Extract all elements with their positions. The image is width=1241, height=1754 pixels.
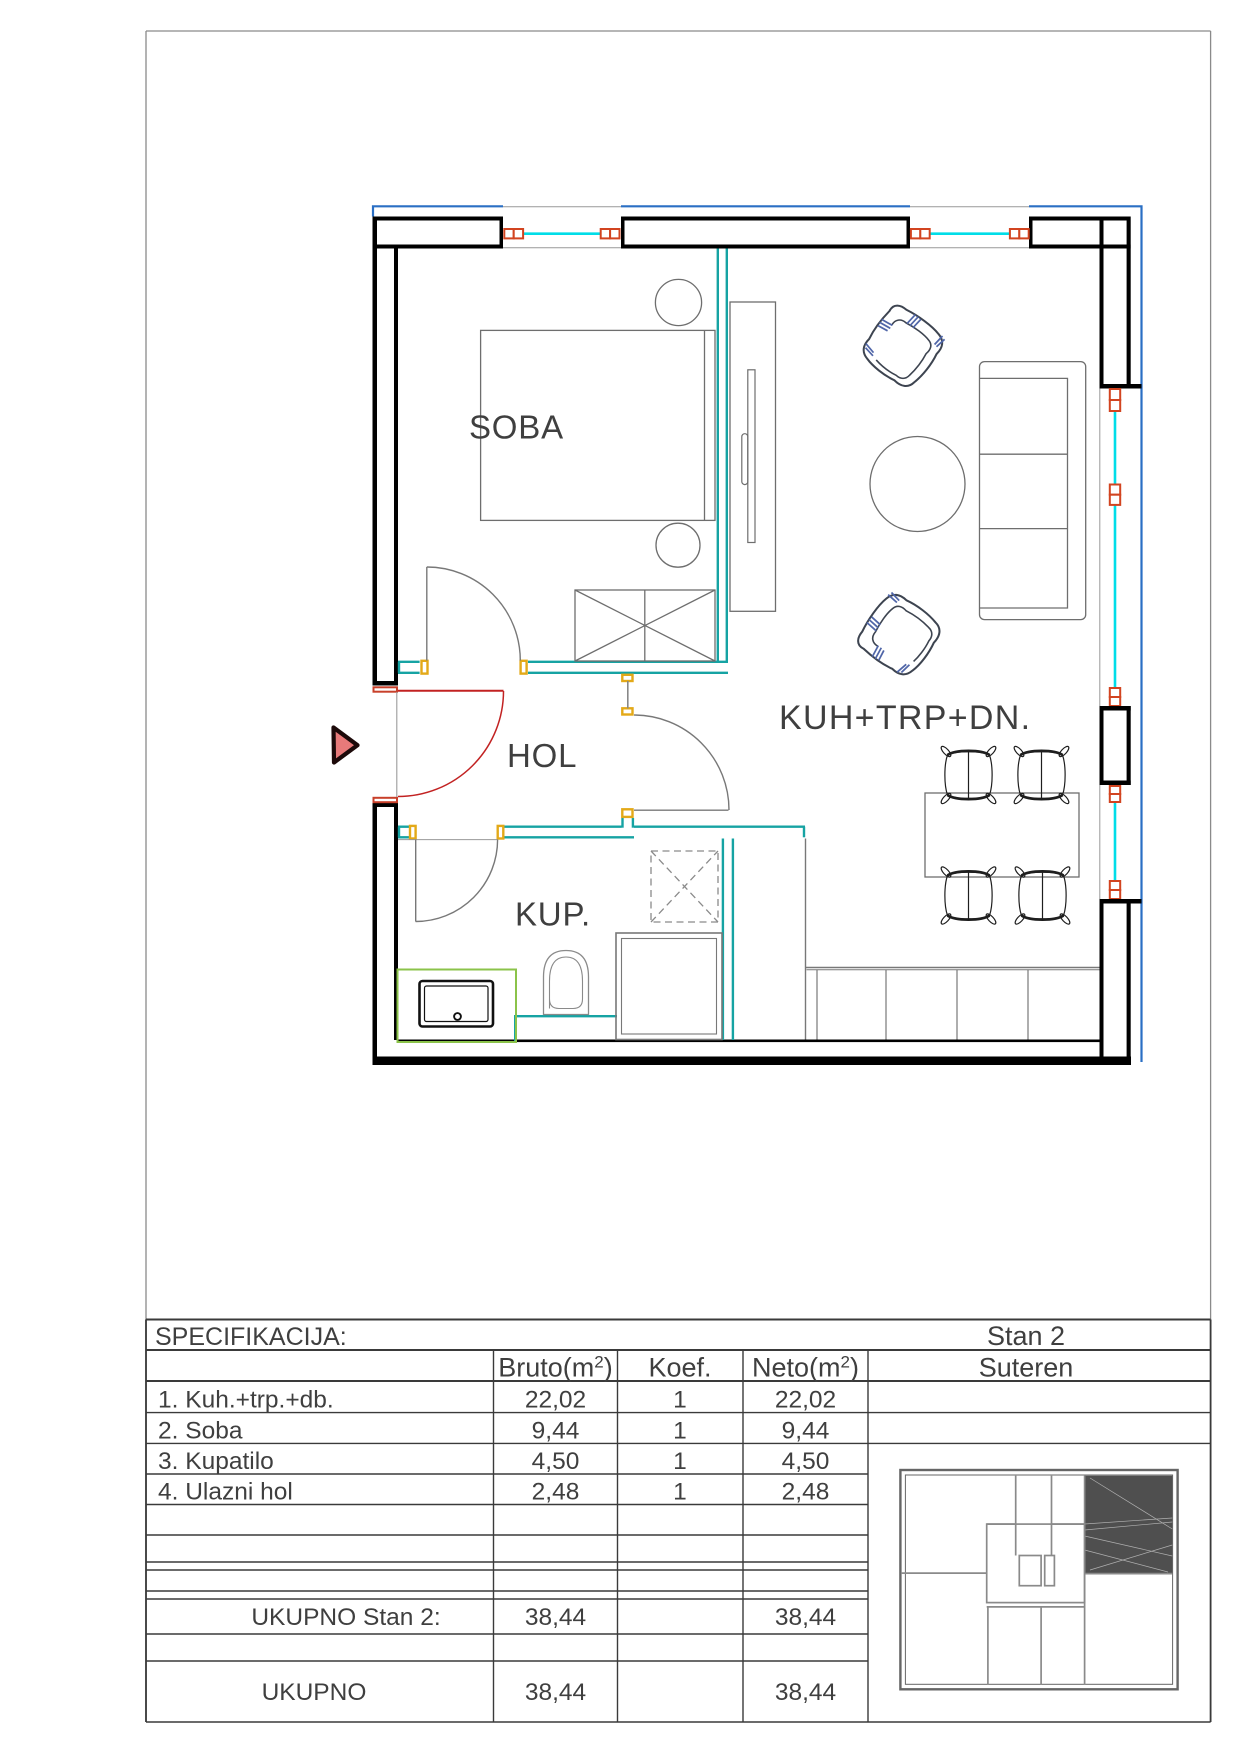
svg-text:4. Ulazni hol: 4. Ulazni hol — [158, 1479, 293, 1506]
svg-text:UKUPNO: UKUPNO — [262, 1679, 367, 1706]
svg-text:2,48: 2,48 — [532, 1479, 580, 1506]
svg-text:1: 1 — [673, 1448, 687, 1475]
svg-text:SPECIFIKACIJA:: SPECIFIKACIJA: — [155, 1323, 347, 1351]
svg-text:1: 1 — [673, 1387, 687, 1414]
svg-text:UKUPNO Stan 2:: UKUPNO Stan 2: — [251, 1604, 440, 1631]
svg-text:Koef.: Koef. — [648, 1353, 711, 1383]
svg-text:1: 1 — [673, 1418, 687, 1445]
svg-text:Suteren: Suteren — [979, 1353, 1074, 1383]
svg-text:22,02: 22,02 — [775, 1387, 836, 1414]
svg-text:9,44: 9,44 — [782, 1418, 830, 1445]
svg-text:38,44: 38,44 — [525, 1604, 586, 1631]
svg-text:3. Kupatilo: 3. Kupatilo — [158, 1448, 274, 1475]
svg-text:2. Soba: 2. Soba — [158, 1418, 243, 1445]
svg-text:1: 1 — [673, 1479, 687, 1506]
svg-text:9,44: 9,44 — [532, 1418, 580, 1445]
svg-text:Stan 2: Stan 2 — [987, 1321, 1065, 1351]
svg-text:38,44: 38,44 — [775, 1679, 836, 1706]
svg-text:38,44: 38,44 — [525, 1679, 586, 1706]
svg-text:2,48: 2,48 — [782, 1479, 830, 1506]
svg-text:1. Kuh.+trp.+db.: 1. Kuh.+trp.+db. — [158, 1387, 334, 1414]
svg-text:22,02: 22,02 — [525, 1387, 586, 1414]
svg-text:KUH+TRP+DN.: KUH+TRP+DN. — [779, 699, 1031, 737]
svg-text:SOBA: SOBA — [469, 409, 564, 446]
svg-text:KUP.: KUP. — [515, 896, 591, 933]
svg-text:4,50: 4,50 — [532, 1448, 580, 1475]
svg-text:HOL: HOL — [507, 737, 577, 774]
svg-text:4,50: 4,50 — [782, 1448, 830, 1475]
svg-text:38,44: 38,44 — [775, 1604, 836, 1631]
